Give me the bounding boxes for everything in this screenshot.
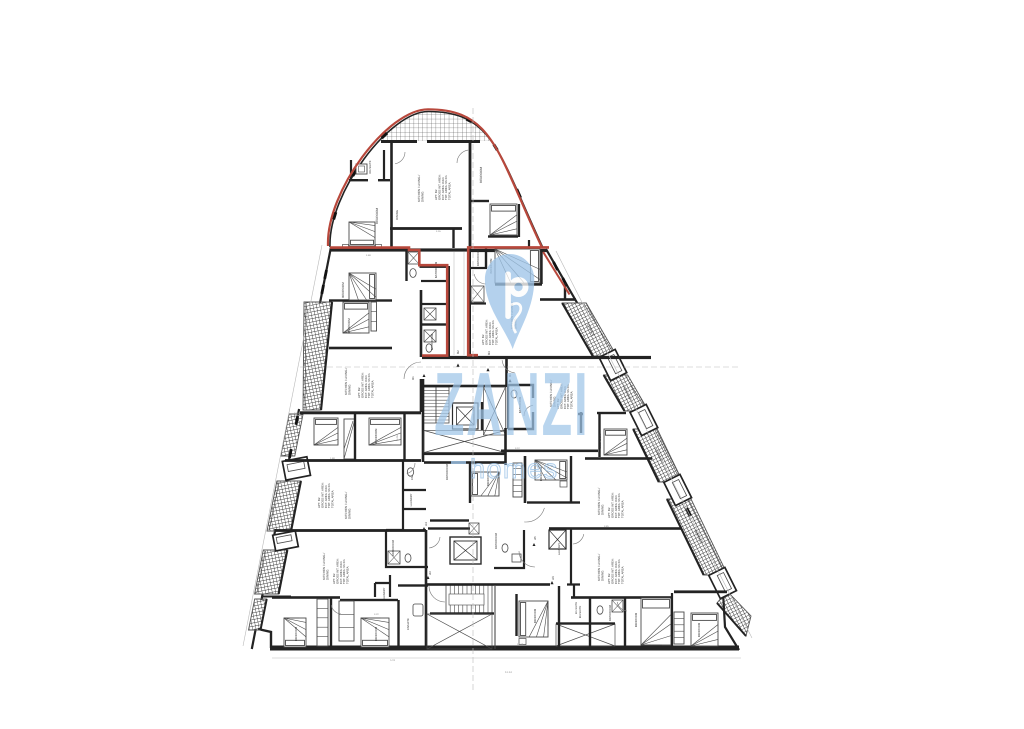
svg-text:11.14: 11.14 (517, 643, 524, 646)
svg-text:EN-SUITE: EN-SUITE (575, 602, 578, 614)
svg-text:BEDROOM: BEDROOM (374, 428, 378, 444)
svg-text:BEDROOM: BEDROOM (347, 318, 351, 334)
svg-text:BATHROOM: BATHROOM (430, 333, 434, 350)
svg-text:B2: B2 (456, 350, 460, 354)
svg-text:BATHROOM: BATHROOM (391, 539, 395, 556)
svg-text:BEDROOM: BEDROOM (341, 282, 345, 298)
svg-text:TOTAL AREA:: TOTAL AREA: (621, 566, 625, 584)
svg-text:BEDROOM: BEDROOM (697, 622, 701, 637)
svg-text:ZANZI: ZANZI (434, 355, 589, 455)
svg-text:DINING: DINING (601, 504, 605, 515)
svg-text:DINING: DINING (348, 384, 352, 395)
svg-text:ENSUITE: ENSUITE (407, 618, 410, 630)
svg-text:4.55: 4.55 (436, 230, 441, 233)
svg-text:3.05: 3.05 (396, 435, 399, 440)
svg-text:TOTAL AREA:: TOTAL AREA: (448, 182, 452, 200)
svg-text:DINING: DINING (348, 508, 352, 519)
svg-text:EN-SUITE: EN-SUITE (368, 160, 372, 173)
svg-text:BEDROOM: BEDROOM (634, 612, 638, 627)
svg-text:BEDROOM: BEDROOM (479, 167, 483, 183)
svg-text:A5: A5 (533, 536, 537, 540)
svg-text:DINING: DINING (601, 570, 605, 581)
svg-text:BATHROOM: BATHROOM (608, 604, 612, 621)
svg-text:homes: homes (470, 454, 559, 484)
svg-text:BEDROOM: BEDROOM (374, 626, 378, 641)
svg-text:BEDROOM: BEDROOM (294, 626, 298, 641)
svg-text:TOTAL AREA:: TOTAL AREA: (495, 327, 499, 345)
svg-text:DINING: DINING (326, 569, 330, 580)
svg-text:LAUNDRY: LAUNDRY (383, 587, 386, 600)
svg-text:BEDROOM: BEDROOM (375, 208, 379, 224)
svg-text:EN-SUITE: EN-SUITE (579, 606, 582, 619)
svg-text:11.14: 11.14 (505, 670, 512, 674)
svg-text:TOTAL AREA:: TOTAL AREA: (331, 490, 335, 508)
svg-text:BATHROOM: BATHROOM (445, 463, 449, 480)
svg-text:3.85: 3.85 (604, 525, 609, 528)
svg-text:TOTAL AREA:: TOTAL AREA: (371, 380, 375, 398)
svg-text:6.03: 6.03 (390, 659, 396, 662)
svg-text:4.88: 4.88 (366, 254, 371, 257)
svg-text:0.93: 0.93 (294, 412, 299, 415)
svg-text:A3: A3 (428, 571, 432, 575)
svg-text:DINING: DINING (395, 210, 399, 220)
svg-text:3.20: 3.20 (374, 613, 379, 616)
svg-text:TOTAL AREA:: TOTAL AREA: (621, 500, 625, 518)
svg-text:1.88: 1.88 (330, 457, 335, 460)
svg-text:A4: A4 (424, 522, 428, 526)
svg-text:LAUNDRY: LAUNDRY (558, 543, 561, 556)
svg-text:BATHROOM: BATHROOM (476, 249, 480, 266)
svg-text:B1: B1 (411, 376, 415, 380)
svg-text:BATHROOM: BATHROOM (434, 261, 438, 278)
svg-text:BATHROOM: BATHROOM (494, 532, 498, 549)
svg-text:LAUNDRY: LAUNDRY (410, 493, 413, 506)
svg-text:DINING: DINING (421, 191, 425, 202)
svg-text:BEDROOM: BEDROOM (598, 433, 602, 449)
svg-text:A6: A6 (551, 576, 555, 580)
svg-text:TOTAL AREA:: TOTAL AREA: (346, 566, 350, 584)
svg-text:BEDROOM: BEDROOM (533, 608, 537, 623)
